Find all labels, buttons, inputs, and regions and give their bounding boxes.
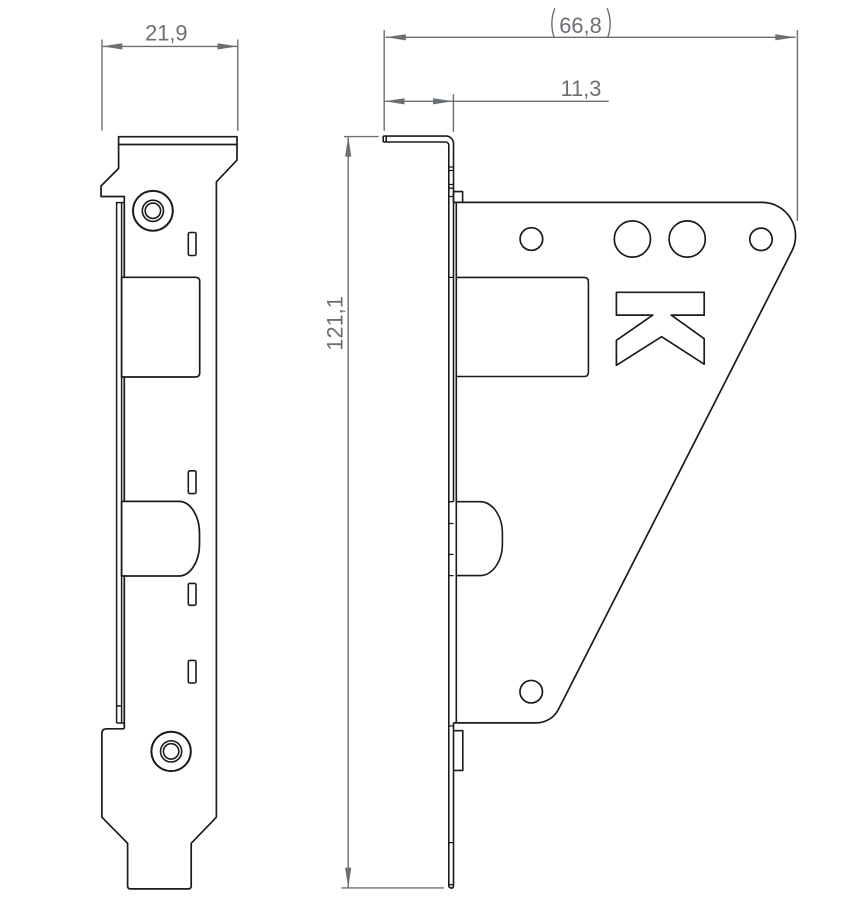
svg-text:21,9: 21,9	[145, 21, 187, 46]
svg-text:121,1: 121,1	[323, 296, 348, 351]
svg-text:11,3: 11,3	[561, 76, 602, 101]
svg-text:66,8: 66,8	[559, 13, 601, 38]
